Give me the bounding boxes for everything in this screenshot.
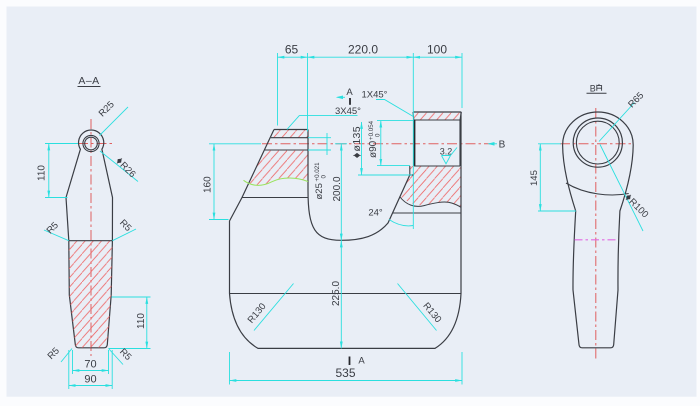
svg-text:ø25: ø25 [314, 183, 325, 199]
svg-text:B: B [590, 84, 596, 94]
svg-text:160: 160 [203, 176, 214, 193]
svg-text:110: 110 [37, 165, 48, 181]
svg-text:B: B [499, 140, 506, 151]
svg-text:145: 145 [529, 170, 540, 186]
svg-text:535: 535 [335, 366, 355, 380]
svg-text:100: 100 [427, 43, 447, 57]
svg-text:1X45°: 1X45° [362, 90, 388, 101]
svg-text:90: 90 [84, 374, 96, 386]
svg-text:A–A: A–A [78, 75, 99, 87]
svg-text:ø90: ø90 [368, 140, 379, 158]
svg-text:3X45°: 3X45° [335, 106, 361, 117]
svg-text:220.0: 220.0 [348, 43, 378, 57]
svg-text:0: 0 [320, 175, 327, 179]
svg-text:A: A [346, 87, 353, 98]
svg-text:65: 65 [285, 43, 299, 57]
svg-text:110: 110 [136, 313, 147, 329]
svg-text:225.0: 225.0 [331, 281, 342, 306]
svg-text:70: 70 [84, 359, 96, 371]
svg-text:A: A [358, 356, 365, 367]
svg-text:24°: 24° [368, 208, 383, 219]
